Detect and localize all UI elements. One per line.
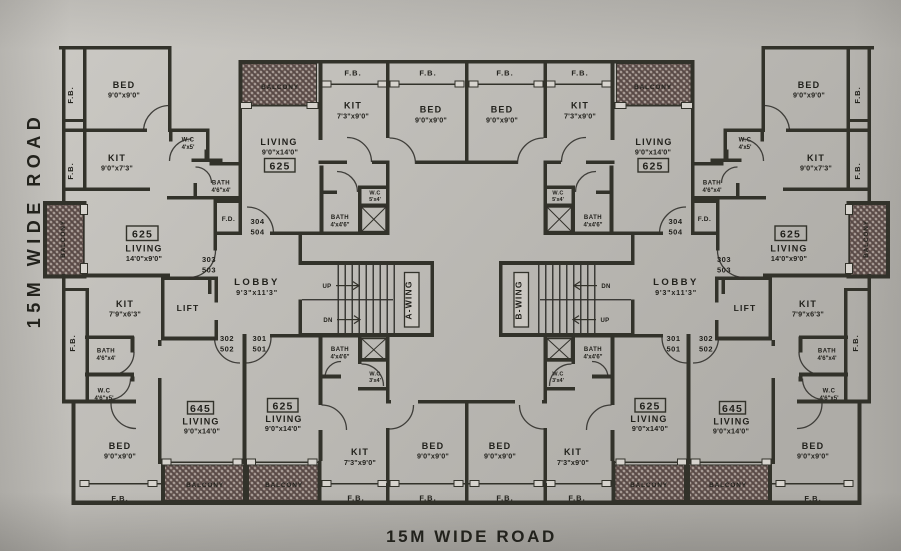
svg-text:9'0"x14'0": 9'0"x14'0" (184, 427, 220, 436)
svg-text:625: 625 (132, 229, 153, 241)
svg-text:9'0"x9'0": 9'0"x9'0" (793, 91, 825, 100)
svg-text:BATH: BATH (212, 181, 230, 187)
svg-text:304: 304 (250, 217, 264, 226)
svg-text:7'9"x6'3": 7'9"x6'3" (792, 310, 824, 319)
svg-text:9'0"x9'0": 9'0"x9'0" (417, 452, 449, 461)
svg-text:BATH: BATH (818, 349, 836, 355)
svg-text:BATH: BATH (97, 349, 115, 355)
svg-text:502: 502 (699, 345, 713, 354)
svg-text:503: 503 (717, 266, 731, 275)
svg-text:W.C: W.C (98, 389, 111, 395)
svg-text:LOBBY: LOBBY (653, 277, 699, 288)
svg-text:3'x4': 3'x4' (552, 378, 564, 384)
svg-text:LIVING: LIVING (635, 137, 672, 147)
svg-text:14'0"x9'0": 14'0"x9'0" (771, 254, 807, 263)
svg-text:F.D.: F.D. (222, 216, 236, 223)
svg-text:BED: BED (802, 441, 825, 451)
svg-text:645: 645 (190, 403, 211, 415)
svg-text:BED: BED (420, 105, 443, 115)
svg-text:W.C: W.C (823, 389, 836, 395)
svg-text:9'0"x14'0": 9'0"x14'0" (265, 424, 301, 433)
svg-text:BALCONY: BALCONY (261, 84, 299, 91)
svg-text:UP: UP (601, 318, 610, 324)
svg-text:302: 302 (220, 334, 234, 343)
svg-text:LIFT: LIFT (734, 303, 757, 313)
svg-text:9'0"x14'0": 9'0"x14'0" (713, 427, 749, 436)
svg-text:4'6"x4': 4'6"x4' (817, 356, 837, 362)
svg-text:LIVING: LIVING (265, 414, 302, 424)
svg-text:LIVING: LIVING (713, 417, 750, 427)
svg-text:4'x5': 4'x5' (739, 145, 752, 151)
svg-text:LIVING: LIVING (770, 244, 807, 254)
svg-text:KIT: KIT (564, 447, 582, 457)
svg-text:501: 501 (666, 345, 680, 354)
svg-text:KIT: KIT (571, 101, 589, 111)
svg-text:4'x4'6": 4'x4'6" (583, 355, 602, 361)
svg-text:4'6"x4': 4'6"x4' (211, 188, 231, 194)
svg-text:F.B.: F.B. (66, 86, 75, 103)
svg-text:7'9"x6'3": 7'9"x6'3" (109, 310, 141, 319)
svg-text:F.B.: F.B. (419, 69, 436, 78)
svg-text:9'3"x11'3": 9'3"x11'3" (236, 288, 278, 297)
svg-text:4'x4'6": 4'x4'6" (330, 223, 349, 229)
svg-text:625: 625 (272, 401, 293, 413)
svg-text:9'0"x9'0": 9'0"x9'0" (108, 91, 140, 100)
svg-text:F.B.: F.B. (66, 162, 75, 179)
svg-text:503: 503 (202, 266, 216, 275)
svg-text:15M WIDE ROAD: 15M WIDE ROAD (386, 527, 557, 546)
svg-text:625: 625 (780, 229, 801, 241)
svg-text:BATH: BATH (584, 215, 602, 221)
svg-text:303: 303 (717, 255, 731, 264)
svg-text:A-WING: A-WING (404, 280, 414, 319)
svg-text:15M WIDE ROAD: 15M WIDE ROAD (24, 112, 44, 329)
svg-text:9'0"x14'0": 9'0"x14'0" (635, 148, 671, 157)
svg-text:KIT: KIT (108, 153, 126, 163)
svg-text:502: 502 (220, 345, 234, 354)
svg-text:645: 645 (722, 403, 743, 415)
svg-text:BALCONY: BALCONY (60, 220, 67, 258)
svg-text:BED: BED (109, 441, 132, 451)
svg-text:9'0"x9'0": 9'0"x9'0" (104, 452, 136, 461)
svg-text:9'0"x9'0": 9'0"x9'0" (415, 116, 447, 125)
svg-text:304: 304 (668, 217, 682, 226)
svg-text:4'x4'6": 4'x4'6" (583, 223, 602, 229)
svg-text:7'3"x9'0": 7'3"x9'0" (344, 458, 376, 467)
svg-text:LIVING: LIVING (630, 414, 667, 424)
svg-text:504: 504 (668, 228, 682, 237)
svg-text:BED: BED (422, 441, 445, 451)
svg-text:5'x4': 5'x4' (369, 197, 381, 203)
svg-text:7'3"x9'0": 7'3"x9'0" (337, 112, 369, 121)
svg-text:KIT: KIT (116, 299, 134, 309)
svg-text:F.B.: F.B. (68, 334, 77, 351)
svg-text:W.C: W.C (369, 191, 380, 197)
svg-text:F.D.: F.D. (698, 216, 712, 223)
svg-text:LIVING: LIVING (260, 137, 297, 147)
svg-text:KIT: KIT (344, 101, 362, 111)
svg-text:KIT: KIT (351, 447, 369, 457)
svg-text:BALCONY: BALCONY (265, 482, 303, 489)
svg-text:BALCONY: BALCONY (709, 482, 747, 489)
svg-text:301: 301 (252, 334, 266, 343)
svg-text:BATH: BATH (331, 215, 349, 221)
svg-text:BED: BED (113, 80, 136, 90)
svg-text:BED: BED (491, 105, 514, 115)
svg-text:F.B.: F.B. (853, 86, 862, 103)
svg-text:302: 302 (699, 334, 713, 343)
svg-text:LIVING: LIVING (125, 244, 162, 254)
svg-text:BED: BED (489, 441, 512, 451)
svg-text:4'x4'6": 4'x4'6" (330, 355, 349, 361)
svg-text:BATH: BATH (703, 181, 721, 187)
svg-text:5'x4': 5'x4' (552, 197, 564, 203)
svg-text:625: 625 (642, 161, 663, 173)
svg-text:9'0"x14'0": 9'0"x14'0" (262, 148, 298, 157)
svg-text:BALCONY: BALCONY (630, 482, 668, 489)
svg-text:KIT: KIT (799, 299, 817, 309)
svg-text:BED: BED (798, 80, 821, 90)
svg-text:DN: DN (323, 318, 332, 324)
svg-text:301: 301 (666, 334, 680, 343)
svg-text:F.B.: F.B. (853, 162, 862, 179)
svg-text:F.B.: F.B. (496, 69, 513, 78)
svg-text:UP: UP (323, 284, 332, 290)
svg-text:DN: DN (601, 284, 610, 290)
svg-text:LOBBY: LOBBY (234, 277, 280, 288)
svg-text:BALCONY: BALCONY (863, 220, 870, 258)
svg-text:9'0"x7'3": 9'0"x7'3" (101, 164, 133, 173)
svg-text:BALCONY: BALCONY (186, 482, 224, 489)
svg-text:14'0"x9'0": 14'0"x9'0" (126, 254, 162, 263)
svg-text:W.C: W.C (552, 191, 563, 197)
svg-text:501: 501 (252, 345, 266, 354)
svg-text:9'0"x9'0": 9'0"x9'0" (797, 452, 829, 461)
svg-text:303: 303 (202, 255, 216, 264)
svg-text:7'3"x9'0": 7'3"x9'0" (564, 112, 596, 121)
svg-text:F.B.: F.B. (344, 69, 361, 78)
svg-text:9'0"x9'0": 9'0"x9'0" (484, 452, 516, 461)
svg-text:BALCONY: BALCONY (634, 84, 672, 91)
svg-text:LIVING: LIVING (182, 417, 219, 427)
svg-text:4'x5': 4'x5' (182, 145, 195, 151)
svg-text:F.B.: F.B. (851, 334, 860, 351)
svg-text:9'0"x7'3": 9'0"x7'3" (800, 164, 832, 173)
svg-text:3'x4': 3'x4' (369, 378, 381, 384)
svg-text:4'6"x4': 4'6"x4' (702, 188, 722, 194)
svg-text:625: 625 (639, 401, 660, 413)
svg-text:7'3"x9'0": 7'3"x9'0" (557, 458, 589, 467)
svg-text:9'3"x11'3": 9'3"x11'3" (655, 288, 697, 297)
svg-text:BATH: BATH (331, 347, 349, 353)
svg-text:625: 625 (269, 161, 290, 173)
svg-text:4'6"x4': 4'6"x4' (96, 356, 116, 362)
svg-text:BATH: BATH (584, 347, 602, 353)
svg-text:504: 504 (250, 228, 264, 237)
svg-text:LIFT: LIFT (177, 303, 200, 313)
svg-text:9'0"x14'0": 9'0"x14'0" (632, 424, 668, 433)
svg-text:9'0"x9'0": 9'0"x9'0" (486, 116, 518, 125)
svg-text:KIT: KIT (807, 153, 825, 163)
svg-text:B-WING: B-WING (513, 280, 523, 319)
svg-text:F.B.: F.B. (571, 69, 588, 78)
